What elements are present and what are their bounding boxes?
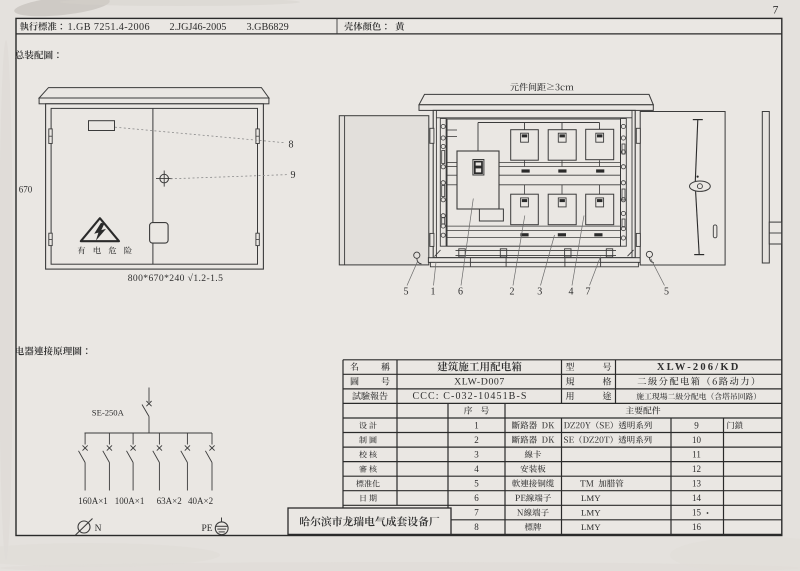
svg-text:14: 14 [692, 493, 702, 503]
svg-text:1.GB 7251.4-2006: 1.GB 7251.4-2006 [68, 22, 151, 33]
svg-text:5: 5 [474, 479, 479, 489]
svg-text:670: 670 [19, 184, 33, 194]
svg-text:5: 5 [404, 287, 409, 298]
svg-text:63A×2: 63A×2 [157, 496, 182, 506]
svg-text:9: 9 [291, 170, 296, 181]
svg-text:LMY: LMY [581, 522, 601, 532]
svg-text:LMY: LMY [581, 508, 601, 518]
svg-text:160A×1: 160A×1 [78, 496, 108, 506]
svg-text:7: 7 [773, 5, 779, 17]
svg-text:3: 3 [474, 449, 479, 459]
svg-text:3.GB6829: 3.GB6829 [247, 22, 289, 33]
svg-text:2.JGJ46-2005: 2.JGJ46-2005 [170, 22, 227, 33]
svg-text:LMY: LMY [581, 493, 601, 503]
svg-text:2: 2 [474, 435, 479, 445]
svg-text:7: 7 [474, 508, 479, 518]
svg-text:1: 1 [474, 420, 479, 430]
svg-text:9: 9 [694, 420, 699, 430]
svg-text:8: 8 [474, 522, 479, 532]
svg-text:PE: PE [201, 524, 212, 534]
svg-text:XLW-D007: XLW-D007 [454, 377, 505, 388]
svg-text:8: 8 [289, 140, 294, 151]
svg-text:2: 2 [510, 287, 515, 298]
svg-text:N: N [95, 524, 102, 534]
svg-text:XLW-206/KD: XLW-206/KD [657, 362, 741, 373]
svg-text:15: 15 [692, 508, 702, 518]
svg-text:13: 13 [692, 479, 702, 489]
svg-text:CCC: C-032-10451B-S: CCC: C-032-10451B-S [412, 391, 527, 402]
svg-text:100A×1: 100A×1 [115, 496, 145, 506]
svg-text:1: 1 [431, 287, 436, 298]
svg-text:6: 6 [458, 287, 463, 298]
svg-text:16: 16 [692, 522, 702, 532]
svg-text:SE-250A: SE-250A [92, 408, 125, 418]
svg-text:6: 6 [474, 493, 479, 503]
svg-text:7: 7 [586, 287, 591, 298]
svg-text:40A×2: 40A×2 [188, 496, 213, 506]
svg-text:4: 4 [474, 464, 479, 474]
svg-text:10: 10 [692, 435, 702, 445]
svg-text:4: 4 [569, 287, 574, 298]
svg-text:800*670*240 √1.2-1.5: 800*670*240 √1.2-1.5 [128, 273, 224, 284]
svg-text:5: 5 [664, 287, 669, 298]
svg-text:12: 12 [692, 464, 701, 474]
svg-text:3: 3 [537, 287, 542, 298]
svg-text:11: 11 [692, 449, 701, 459]
